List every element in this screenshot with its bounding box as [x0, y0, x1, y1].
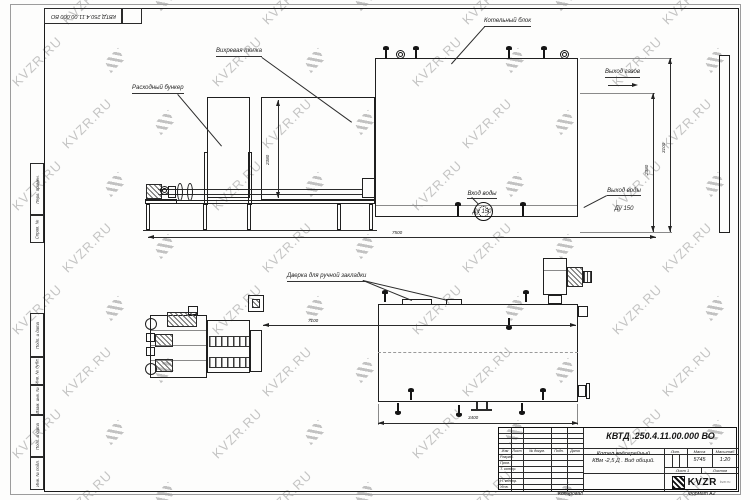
transition-box	[250, 330, 262, 372]
mrot: Взам. инв. №	[35, 387, 40, 414]
l	[672, 454, 673, 467]
bolt-icon	[458, 405, 460, 413]
kvzr-logo-sub: kvzr.ru	[720, 480, 731, 484]
lbl: Ду 150	[615, 206, 634, 212]
fan-scroll	[543, 258, 567, 295]
rear-fitting	[578, 306, 588, 317]
l	[499, 472, 583, 473]
margin-cell-dubl: Инв. № дубл.	[30, 357, 44, 385]
hopper-post	[248, 152, 252, 205]
mrot: Инв. № дубл.	[35, 358, 40, 384]
fan-inner-line	[544, 270, 566, 271]
top-stamp-cell	[122, 8, 142, 24]
top-designation-text: КВТД 250.4.11.00.000 ВО	[51, 13, 116, 19]
dim-furnace-height: 2380	[265, 155, 270, 165]
tb-col-scale: Масштаб	[712, 449, 738, 454]
gear-coupling	[168, 186, 176, 198]
gearbox-plan	[167, 312, 197, 327]
mrot: Инв. № подл.	[35, 460, 40, 487]
drawing-layer: КВТД 250.4.11.00.000 ВО Перв. примен. Сп…	[0, 0, 750, 500]
dim-ext	[580, 93, 655, 94]
ah	[668, 58, 672, 64]
door-hatch	[446, 299, 462, 305]
margin-cell-vzam: Взам. инв. №	[30, 385, 44, 415]
callout-manual-door: Дверка для ручной закладки	[287, 273, 366, 282]
l	[499, 484, 583, 485]
l	[499, 433, 583, 434]
copied-label: Копировал	[558, 491, 583, 497]
lbl: Ду 150	[473, 209, 492, 215]
shaft-flange	[177, 183, 183, 201]
margin-cell-podl: Инв. № подл.	[30, 457, 44, 490]
callout-boiler-unit: Котельный блок	[484, 18, 531, 27]
tb-t: Н. контр.	[500, 479, 517, 483]
bottom-bracket-base	[471, 409, 492, 411]
drawing-line: КВм -2,5 Д . Вид общий.	[592, 458, 655, 464]
ah	[378, 421, 384, 425]
rear-flange-plate	[586, 383, 590, 399]
frame-leg	[146, 204, 150, 230]
bearing-block	[155, 359, 173, 372]
ah	[276, 100, 280, 106]
frame-leg	[337, 204, 341, 230]
title-block: КВТД .250.4.11.00.000 ВО Котел водогрейн…	[498, 427, 737, 490]
bolt-icon	[508, 50, 510, 58]
dim-plan-top-length: 7100	[308, 318, 318, 323]
furnace-door-inner	[252, 299, 260, 308]
tb-t: Изм	[499, 449, 511, 453]
ah	[572, 421, 578, 425]
callout-water-out: Выход воды Ду 150	[598, 179, 650, 215]
rear-flange	[578, 385, 586, 397]
tb-t: № докум.	[523, 449, 551, 453]
tb-t: Лист	[511, 449, 523, 453]
gas-duct	[719, 55, 730, 233]
margin-cell-podp1: Подп. и дата	[30, 313, 44, 357]
bolt-icon	[415, 50, 417, 58]
dim-line	[278, 100, 279, 198]
callout-gas-out: Выход газов	[605, 69, 640, 78]
tb-product-name: Котел водогрейныйКВм -2,5 Д . Вид общий.	[583, 451, 664, 465]
ah	[651, 226, 655, 232]
callout-feed-hopper: Расходный бункер	[132, 85, 184, 94]
l	[499, 443, 583, 444]
tb-col-mass: Масса	[687, 449, 712, 454]
tb-t: Подп.	[551, 449, 567, 453]
auger-screw	[209, 357, 249, 368]
l	[679, 454, 680, 467]
door-hatch	[402, 299, 432, 305]
auger-screw	[209, 336, 249, 347]
frame-leg	[247, 204, 251, 230]
bolt-icon	[542, 392, 544, 400]
tb-designation: КВТД .250.4.11.00.000 ВО	[583, 431, 738, 441]
dim-line	[670, 58, 671, 232]
tb-scale-value: 1:20	[712, 457, 738, 463]
margin-cell-sprav: Справ. №	[30, 215, 44, 243]
kvzr-logo-text: KVZR	[688, 477, 717, 488]
lbl: Выход воды	[607, 188, 641, 196]
dim-total-height: 3100	[661, 143, 666, 153]
bottom-bracket-leg	[476, 402, 478, 409]
boiler-plan-outline	[378, 304, 578, 402]
l	[499, 460, 583, 461]
hopper-post	[204, 152, 208, 205]
tb-t: Дата	[567, 449, 583, 453]
dim-line	[263, 325, 576, 326]
tb-t: Пров.	[500, 461, 510, 465]
mrot: Подп. и дата	[35, 322, 40, 349]
margin-cell-perv: Перв. примен.	[30, 163, 44, 215]
tb-t: Разраб.	[500, 455, 514, 459]
bolt-icon	[385, 50, 387, 58]
frame-rail-line	[151, 330, 206, 331]
bolt-icon	[543, 50, 545, 58]
ah	[263, 323, 269, 327]
kvzr-logo-icon	[672, 476, 685, 489]
fan-duct	[548, 295, 562, 304]
ah	[148, 235, 154, 239]
fan-motor	[567, 267, 583, 287]
gas-arrow-head	[632, 83, 638, 87]
furnace-boiler-connector	[362, 178, 375, 198]
margin-cell-podp2: Подп. и дата	[30, 415, 44, 457]
dim-ext	[580, 58, 672, 59]
callout-water-in: Вход воды Ду 150	[459, 182, 505, 218]
shaft-flange	[187, 183, 193, 201]
bolt-icon	[397, 403, 399, 411]
gas-arrow-line	[608, 85, 632, 86]
ground-line	[143, 230, 377, 231]
dim-side-length: 7500	[392, 230, 402, 235]
ah	[668, 226, 672, 232]
ah	[651, 93, 655, 99]
dim-ext	[580, 232, 672, 233]
frame-leg	[203, 204, 207, 230]
shaft-end-cap	[146, 347, 155, 356]
drawing-sheet: KVZR.RUKVZR.RUKVZR.RUKVZR.RUKVZR.RUKVZR.…	[0, 0, 750, 500]
fan-motor-ribs	[583, 271, 592, 283]
dim-plan-width: 3400	[468, 415, 478, 420]
shaft-end-cap	[146, 333, 155, 342]
shaft-end-flange	[145, 318, 157, 330]
logo-cell: KVZR kvzr.ru	[664, 473, 738, 491]
ah	[650, 235, 656, 239]
mrot: Подп. и дата	[35, 423, 40, 450]
bearing-block	[155, 334, 173, 347]
tb-mass-value: 5745	[687, 457, 712, 463]
valve-icon	[396, 50, 405, 59]
bolt-icon	[384, 294, 386, 302]
l	[499, 438, 583, 439]
tb-t: Т. контр.	[500, 467, 516, 471]
dim-line	[653, 93, 654, 232]
mrot: Перв. примен.	[35, 175, 40, 204]
dim-line	[148, 237, 656, 238]
bolt-icon	[521, 403, 523, 411]
centerline	[378, 352, 578, 353]
tb-sheets: Листов	[702, 468, 738, 473]
bottom-bracket-leg	[486, 402, 488, 409]
shaft-end-flange	[145, 363, 157, 375]
support-post	[522, 206, 524, 216]
mrot: Справ. №	[35, 219, 40, 239]
format-label: Формат А2	[688, 491, 715, 497]
frame-leg	[369, 204, 373, 230]
tb-sheet: Лист 1	[664, 468, 701, 473]
ah	[276, 192, 280, 198]
callout-vortex-furnace: Вихревая топка	[216, 48, 262, 57]
ah	[570, 323, 576, 327]
tb-col-lit: Лит.	[664, 449, 687, 454]
bolt-icon	[525, 294, 527, 302]
bolt-icon	[410, 392, 412, 400]
top-designation-stamp: КВТД 250.4.11.00.000 ВО	[44, 8, 122, 24]
dim-boiler-height: 2380	[644, 165, 649, 175]
dim-line	[378, 423, 578, 424]
valve-icon	[560, 50, 569, 59]
hopper-outline	[207, 97, 250, 198]
tb-t: Утв.	[500, 485, 509, 489]
drawing-line: Котел водогрейный	[597, 451, 650, 457]
